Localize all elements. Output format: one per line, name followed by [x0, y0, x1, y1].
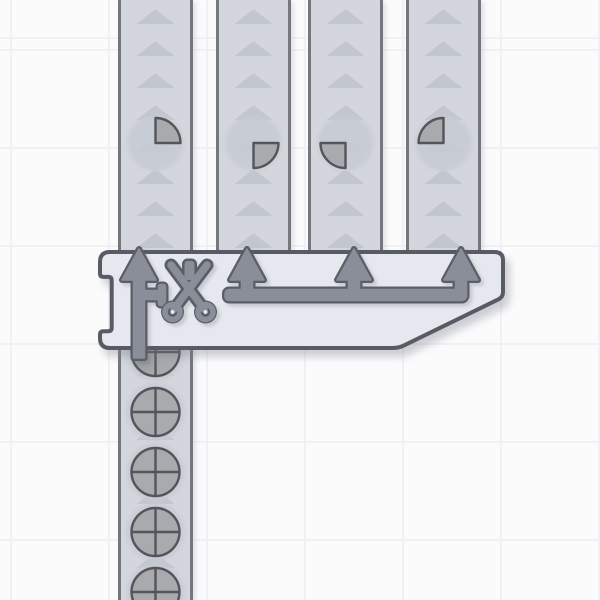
belt-item — [127, 383, 185, 441]
belt-item — [416, 115, 472, 171]
belt-edge — [478, 0, 481, 252]
belt-item — [226, 115, 282, 171]
belt-item — [128, 115, 184, 171]
belt-edge — [380, 0, 383, 252]
belt-edge — [216, 0, 219, 252]
belt-item — [127, 443, 185, 501]
belt-edge — [288, 0, 291, 252]
belt-item — [318, 115, 374, 171]
belt-edge — [406, 0, 409, 252]
game-viewport — [0, 0, 600, 600]
belt-item — [127, 503, 185, 561]
cutter-quad-building[interactable] — [100, 249, 503, 358]
machine-layer — [100, 249, 503, 358]
belt-edge — [308, 0, 311, 252]
pipe — [225, 290, 466, 301]
pipe — [159, 285, 166, 306]
belt-edge — [190, 0, 193, 252]
belt-edge — [190, 348, 193, 600]
belt-edge — [118, 348, 121, 600]
belt-edge — [118, 0, 121, 252]
scene-canvas — [0, 0, 600, 600]
factory-floor — [0, 0, 600, 600]
